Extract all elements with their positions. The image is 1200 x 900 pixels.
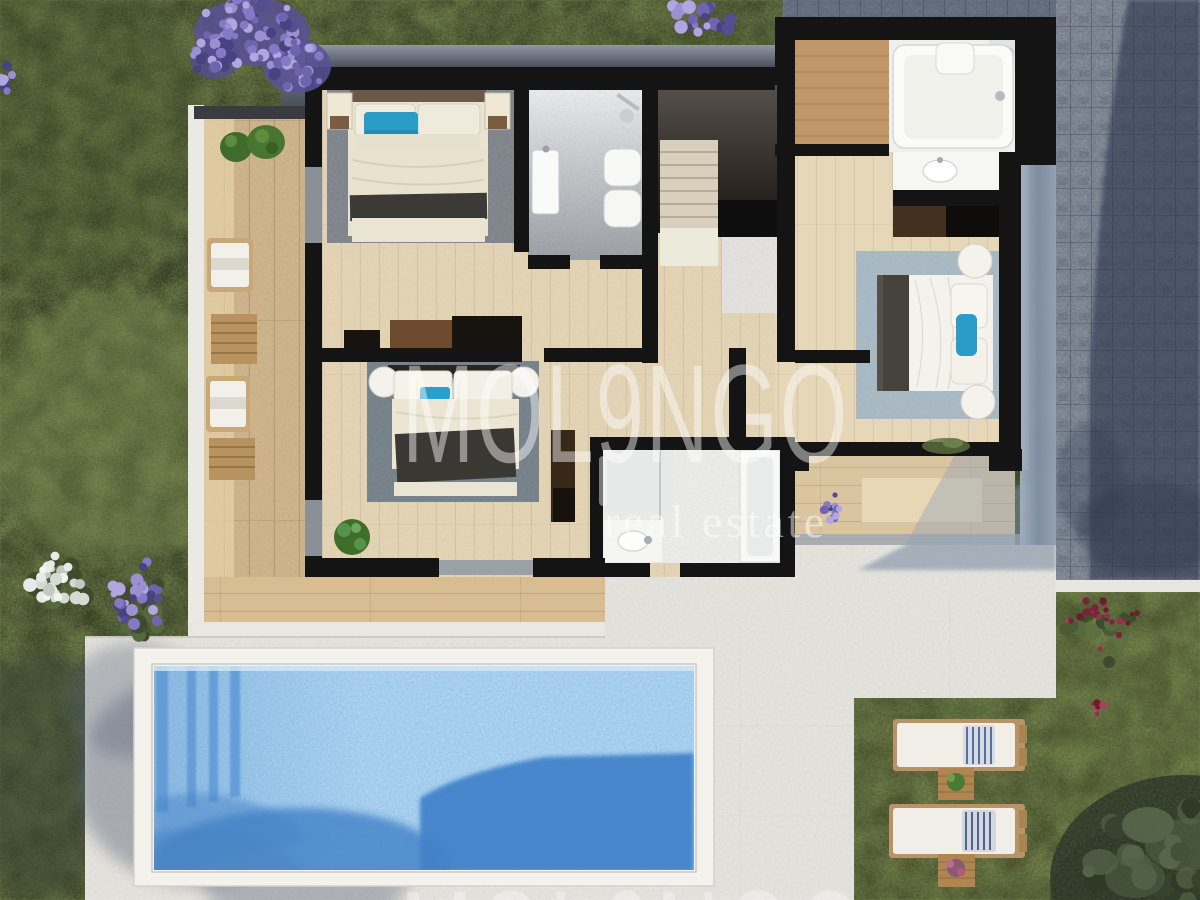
svg-text:real estate: real estate: [604, 496, 828, 547]
svg-text:MOL9NGO: MOL9NGO: [402, 336, 849, 492]
svg-text:MOL9NGO: MOL9NGO: [400, 862, 869, 900]
